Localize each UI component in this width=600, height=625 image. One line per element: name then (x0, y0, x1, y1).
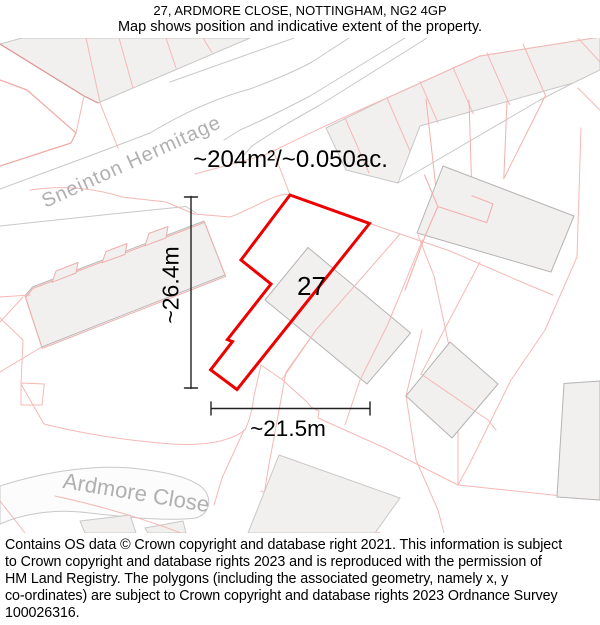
svg-text:~21.5m: ~21.5m (250, 416, 326, 441)
svg-text:~204m²/~0.050ac.: ~204m²/~0.050ac. (193, 146, 388, 173)
svg-text:~26.4m: ~26.4m (158, 246, 184, 323)
svg-text:27: 27 (297, 271, 326, 301)
